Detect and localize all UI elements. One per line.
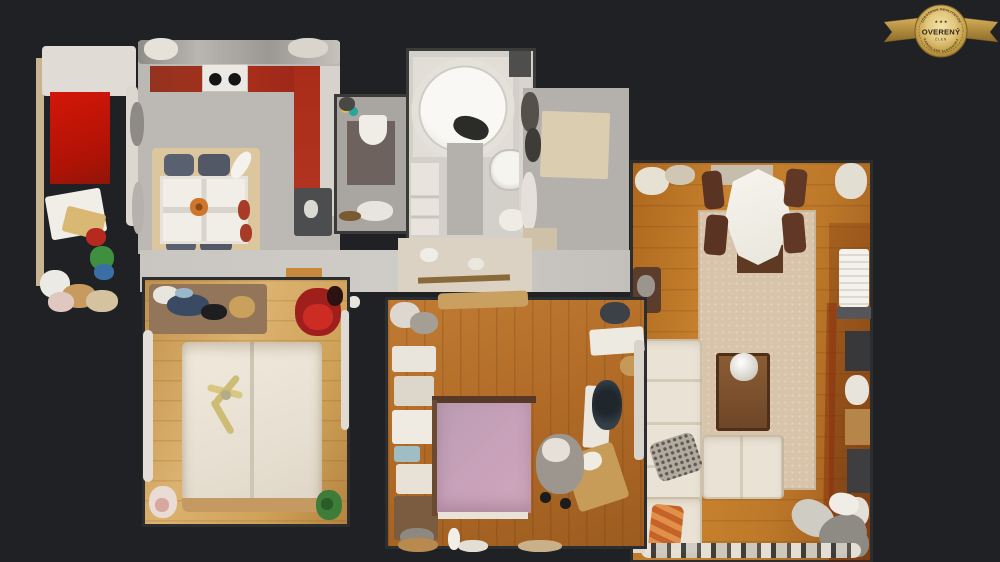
badge-stars: ★ ★ ★ (935, 19, 948, 24)
wheel (560, 498, 571, 509)
open-book-shelf (839, 249, 869, 307)
ribbon-left (884, 18, 918, 42)
pillow-stack (392, 410, 436, 444)
basket-clutter (86, 290, 118, 312)
wood-chair (781, 212, 806, 254)
closet-item (175, 288, 193, 298)
badge-title: OVERENÝ (922, 28, 961, 37)
sofa-horizontal (702, 435, 784, 499)
bath-cabinet (411, 163, 439, 235)
shelf-base (837, 307, 871, 319)
red-clothes-fold (303, 304, 333, 330)
red-chair-cushion (238, 200, 250, 220)
office-chair (592, 380, 622, 430)
flower-centerpiece (190, 198, 208, 216)
bottom-edge-debris (458, 540, 488, 552)
cabinet-item (637, 275, 655, 297)
room-bedroom-2[interactable] (388, 300, 644, 546)
coat-rack (521, 92, 539, 132)
wardrobe-box (392, 346, 436, 372)
door-knob (348, 296, 360, 308)
fridge-highlight (304, 200, 318, 218)
left-wall-plaster (143, 330, 153, 482)
scan-debris (288, 38, 328, 58)
ceiling-fan-hub (221, 390, 231, 400)
kitchen-counter-right (294, 66, 320, 190)
scan-debris (420, 248, 438, 262)
wood-chair (701, 170, 725, 210)
stove-cooktop (202, 64, 248, 92)
scan-debris (665, 165, 695, 185)
bottom-edge-debris (641, 543, 861, 558)
closet-item-tan (229, 296, 255, 318)
dark-coat (525, 128, 541, 162)
scan-debris (339, 97, 355, 111)
scan-debris (635, 167, 669, 195)
red-clutter (86, 228, 106, 246)
wheel (540, 492, 551, 503)
scan-debris (132, 182, 144, 234)
wood-chair (783, 168, 808, 208)
wardrobe-item (845, 331, 870, 371)
bottom-edge-debris (518, 540, 562, 552)
scan-debris (130, 102, 144, 146)
doormat (540, 111, 610, 179)
dark-bag (600, 302, 630, 324)
glass-vase (730, 353, 758, 381)
wardrobe-box (394, 376, 434, 406)
purple-bed (437, 403, 531, 513)
room-storage[interactable] (28, 46, 138, 298)
top-edge-furniture (438, 290, 529, 309)
scan-debris (835, 163, 867, 199)
storage-tiled-area (42, 46, 136, 96)
verified-member-badge: ZDRUŽENIE REALITNÝCH KANCELÁRIÍ SLOVENSK… (884, 2, 998, 62)
chair-fabric (542, 438, 570, 462)
bed-frame-top (432, 396, 536, 403)
right-wall-plaster (634, 340, 644, 460)
bed-edge-white (438, 512, 528, 519)
badge-graphic: ZDRUŽENIE REALITNÝCH KANCELÁRIÍ SLOVENSK… (884, 2, 998, 62)
corridor-floor-beige (398, 238, 532, 292)
room-living[interactable] (633, 163, 870, 560)
plant-leaves (321, 498, 333, 510)
room-bathroom[interactable] (406, 48, 536, 244)
dollhouse-floorplan-view: ZDRUŽENIE REALITNÝCH KANCELÁRIÍ SLOVENSK… (0, 0, 1000, 562)
dark-clothes (327, 286, 343, 306)
bed-footboard (182, 498, 322, 512)
right-wall-plaster (341, 310, 349, 430)
pink-clutter (48, 292, 74, 312)
room-kitchen[interactable] (138, 42, 340, 254)
hall-cabinet (521, 172, 537, 232)
scan-debris (155, 498, 169, 512)
wardrobe-item (845, 409, 870, 445)
ribbon-right (964, 18, 998, 42)
scan-debris (144, 38, 178, 60)
blue-linen (394, 446, 420, 462)
door-knob (448, 528, 460, 550)
white-rug (357, 201, 393, 221)
blue-clutter (94, 264, 114, 280)
wood-threshold (339, 211, 361, 221)
chair (198, 154, 230, 176)
bathroom-tile-strip (447, 143, 483, 235)
storage-red-floor (50, 92, 110, 184)
room-wc[interactable] (334, 94, 414, 234)
scan-debris (410, 312, 438, 334)
room-bedroom-1[interactable] (145, 280, 347, 524)
scan-debris (468, 258, 484, 270)
red-chair-cushion (240, 224, 252, 242)
closet-item-dark (201, 304, 227, 320)
badge-subtitle: ČLEN (935, 37, 947, 42)
double-bed (182, 342, 322, 512)
pillow-stack (396, 464, 436, 494)
scan-debris (509, 51, 531, 77)
wardrobe-item (847, 449, 870, 493)
bottom-edge-debris (398, 538, 438, 552)
toilet (359, 115, 387, 145)
wood-chair (703, 214, 728, 256)
chair (164, 154, 194, 176)
wardrobe-item (845, 375, 869, 405)
